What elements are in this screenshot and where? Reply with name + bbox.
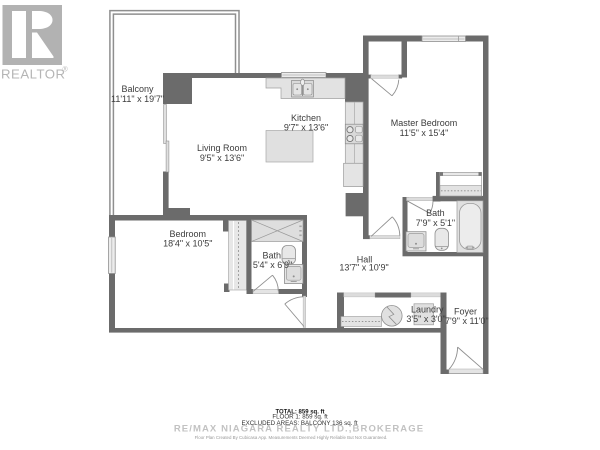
svg-text:3'5" x 3'0": 3'5" x 3'0" xyxy=(406,314,445,324)
svg-text:REALTOR: REALTOR xyxy=(1,67,66,82)
svg-text:9'5" x 13'6": 9'5" x 13'6" xyxy=(200,153,244,163)
svg-text:Master Bedroom: Master Bedroom xyxy=(391,118,458,128)
svg-text:11'11" x 19'7": 11'11" x 19'7" xyxy=(111,94,164,104)
svg-text:9'7" x 13'6": 9'7" x 13'6" xyxy=(284,122,328,132)
svg-text:Foyer: Foyer xyxy=(454,307,477,317)
svg-text:5'4" x 6'9": 5'4" x 6'9" xyxy=(253,260,292,270)
svg-text:Balcony: Balcony xyxy=(121,84,154,94)
svg-text:7'9" x 5'1": 7'9" x 5'1" xyxy=(416,218,455,228)
svg-text:18'4" x 10'5": 18'4" x 10'5" xyxy=(163,239,212,249)
svg-text:EXCLUDED AREAS: BALCONY 136 s: EXCLUDED AREAS: BALCONY 136 sq. ft xyxy=(241,420,357,427)
svg-text:13'7" x 10'9": 13'7" x 10'9" xyxy=(339,262,388,272)
svg-text:®: ® xyxy=(63,66,69,74)
svg-text:7'9" x 11'0": 7'9" x 11'0" xyxy=(445,316,489,326)
svg-text:Bedroom: Bedroom xyxy=(170,229,207,239)
svg-text:Living Room: Living Room xyxy=(197,143,247,153)
svg-text:Bath: Bath xyxy=(426,208,445,218)
svg-text:Floor Plan Created By Cubicasa: Floor Plan Created By Cubicasa App. Meas… xyxy=(195,435,388,440)
svg-text:11'5" x 15'4": 11'5" x 15'4" xyxy=(400,128,449,138)
